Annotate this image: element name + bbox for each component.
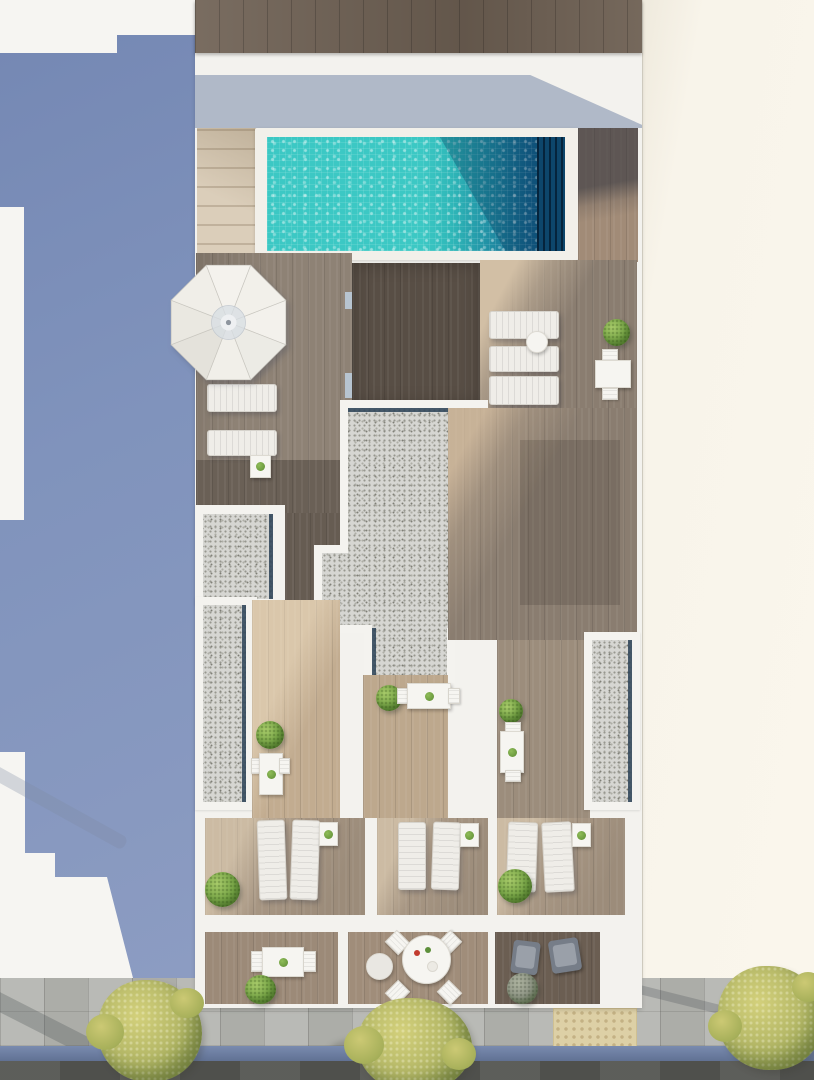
building-cast-shadow (195, 75, 642, 128)
lounge-chair-b3-1 (510, 939, 541, 975)
plant-balcony-3 (507, 973, 538, 1004)
plate-icon (427, 961, 438, 972)
street-tree-left (98, 980, 202, 1080)
right-mid-roof-deck (448, 408, 637, 640)
sun-lounger-5 (489, 376, 559, 405)
chair-south (602, 388, 618, 400)
potted-plant-icon (279, 958, 288, 967)
round-side-table (526, 331, 548, 353)
dark-wood-room-roof (352, 263, 480, 405)
chair-b1-east (303, 951, 316, 972)
side-table-t1 (319, 822, 338, 846)
gravel-edge-line (242, 605, 246, 802)
tree-foliage-blob (442, 1038, 476, 1070)
gravel-roof-left-wide (203, 514, 273, 599)
tree-foliage-blob (86, 1014, 124, 1050)
table-balcony-1 (262, 947, 304, 977)
chair-seat (515, 945, 537, 969)
bush-left-terrace (256, 721, 284, 749)
potted-plant-icon (577, 831, 586, 840)
skylight-1 (345, 292, 352, 309)
right-mid-inner-room (520, 440, 620, 605)
tree-foliage-blob (170, 988, 204, 1018)
side-table-t2 (460, 823, 479, 847)
cream-neighbor-wall (642, 0, 814, 980)
sun-lounger-6 (257, 820, 288, 901)
sun-lounger-4 (489, 346, 559, 372)
pool-side-deck-shadow (578, 128, 638, 262)
table-corridor-b (500, 731, 524, 773)
sun-lounger-9 (431, 822, 461, 891)
swimming-pool (255, 128, 578, 260)
green-decor-icon (425, 947, 431, 953)
side-table-t3 (572, 823, 591, 847)
potted-plant-icon (324, 830, 333, 839)
sun-lounger-7 (290, 820, 321, 901)
pool-shadow (267, 137, 565, 251)
tree-foliage-blob (708, 1010, 742, 1042)
sun-lounger-11 (541, 821, 575, 892)
side-table-1 (250, 455, 271, 478)
potted-plant-icon (465, 831, 474, 840)
building-roof (195, 0, 642, 1008)
side-table-balcony-2 (366, 953, 393, 980)
bush-upper-right (603, 319, 630, 346)
bush-corridor-b (499, 699, 523, 723)
potted-plant-icon (267, 770, 276, 779)
scene (0, 0, 814, 1080)
potted-plant-icon (425, 692, 434, 701)
sun-lounger-3 (489, 311, 559, 339)
bush-balcony-1 (245, 975, 276, 1004)
dining-table-upper-right (595, 360, 631, 388)
sun-lounger-8 (398, 822, 426, 890)
bush-terrace-3 (498, 869, 532, 903)
chair-corridor-b-south (505, 770, 521, 782)
round-table-balcony-2 (402, 935, 451, 984)
parasol-icon (168, 262, 289, 383)
tree-foliage-blob (344, 1026, 384, 1064)
gravel-roof-right (592, 640, 632, 802)
pool-water (267, 137, 565, 251)
potted-plant-icon (508, 748, 517, 757)
pool-overflow-grate (537, 137, 565, 251)
bush-terrace-1 (205, 872, 240, 907)
table-corridor-a (407, 683, 451, 709)
lounge-chair-b3-2 (548, 937, 583, 974)
potted-plant-icon (256, 462, 265, 471)
tree-foliage-blob (792, 972, 814, 1002)
chair-east (279, 758, 290, 774)
pool-side-deck (578, 128, 638, 262)
sun-lounger-2 (207, 430, 277, 456)
red-decor-icon (414, 950, 420, 956)
gravel-edge-stem (372, 628, 376, 675)
gravel-edge-line (269, 514, 273, 599)
top-roof-wood-strip (195, 0, 642, 53)
sun-lounger-1 (207, 384, 277, 412)
street-tree-right (718, 966, 814, 1070)
chair-seat (552, 942, 577, 967)
pool-stairs (197, 128, 261, 262)
tactile-paving (553, 1008, 637, 1048)
skylight-2 (345, 373, 352, 398)
gravel-edge-line (628, 640, 632, 802)
gravel-roof-left-narrow (203, 605, 246, 802)
chair-corridor-a-east (448, 688, 460, 704)
